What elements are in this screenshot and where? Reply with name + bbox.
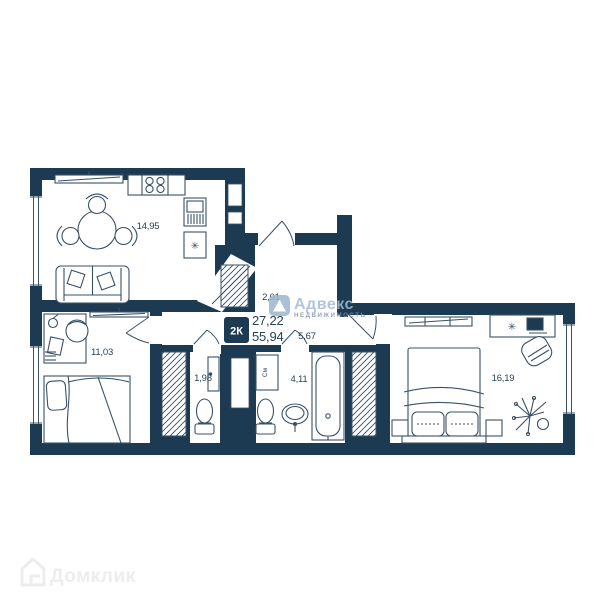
bedroom1-chair — [66, 320, 88, 342]
kitchen-window — [30, 196, 42, 286]
bed2-nightstand — [392, 420, 408, 436]
portal-watermark-title: Домклик — [50, 566, 136, 587]
washing-machine: См — [256, 355, 278, 390]
bedroom2-plant — [513, 397, 549, 436]
wardrobe-corridor-right — [352, 352, 376, 436]
bedroom2-door-opening — [374, 314, 392, 344]
bedroom2-monitor — [527, 318, 543, 330]
bedroom2-bed — [392, 348, 502, 443]
shaft-niche-2 — [228, 212, 242, 224]
wc-door-opening — [193, 341, 221, 354]
washing-machine-label: См — [262, 367, 269, 377]
total-area-value: 55,94 — [252, 329, 284, 344]
bedroom2-chair — [519, 334, 555, 369]
room-label-wc: 1,98 — [194, 373, 212, 384]
wall-rightwing-top — [337, 303, 575, 315]
floor-plan-canvas: ✳ — [0, 0, 600, 600]
bed2-base — [402, 436, 486, 443]
duct-slit — [231, 358, 249, 408]
shaft-niche-1 — [228, 184, 242, 206]
wardrobe-corridor-left — [162, 352, 186, 436]
wall-closet-left-base — [162, 436, 186, 443]
bathroom-toilet — [256, 399, 275, 434]
entrance-opening — [258, 231, 295, 247]
agency-watermark: Адвекс НЕДВИЖИМОСТЬ — [269, 295, 366, 319]
room-label-hallway: 5,67 — [298, 331, 316, 342]
bedroom1-window — [30, 346, 42, 424]
floor-plan-svg: ✳ — [0, 0, 600, 600]
bedroom1-bed — [44, 376, 130, 443]
bed1-pillow — [46, 380, 67, 410]
fridge-snowflake-icon: ✳ — [191, 241, 199, 252]
bedroom1-door — [126, 317, 149, 343]
wall-bath-right — [345, 352, 352, 443]
room-label-kitchen-living: 14,95 — [137, 221, 160, 232]
room-label-bathroom: 4,11 — [291, 374, 308, 385]
wall-bottom — [30, 443, 575, 455]
room-label-bedroom-2: 16,19 — [492, 373, 515, 384]
bath-door-opening — [281, 341, 309, 354]
bed2-pillow — [412, 412, 444, 436]
portal-watermark: Домклик — [22, 559, 136, 587]
agency-watermark-subtitle: НЕДВИЖИМОСТЬ — [294, 312, 366, 319]
bedroom2-tv — [405, 317, 472, 326]
bed2-nightstand — [486, 420, 502, 436]
stove — [142, 175, 168, 195]
agency-watermark-title: Адвекс — [294, 296, 354, 313]
bed2-pillow — [446, 412, 478, 436]
bathroom-sink — [282, 404, 308, 432]
wc-toilet — [195, 399, 214, 434]
bathtub — [312, 352, 344, 440]
bedroom1-desk-lamp — [49, 319, 58, 328]
sofa — [56, 266, 129, 303]
bedroom2-window — [563, 324, 575, 414]
desk-plant-icon: ✳ — [508, 322, 516, 333]
dining-table — [57, 194, 137, 249]
dining-chair — [89, 197, 106, 214]
fridge: ✳ — [184, 232, 206, 258]
apartment-type-label: 2К — [230, 326, 243, 338]
apartment-summary: 2К 27,22 55,94 — [224, 313, 284, 344]
bedroom1-door-opening — [146, 316, 164, 344]
wall-closet-right-base — [352, 436, 376, 443]
bedroom2-desk: ✳ — [490, 315, 555, 337]
portal-house-icon — [22, 559, 44, 585]
dining-chair — [62, 228, 79, 245]
kitchen-sink-unit — [184, 198, 206, 226]
wall-wc-left — [186, 352, 190, 443]
room-label-bedroom-1: 11,03 — [91, 347, 113, 358]
wardrobe-entry-hall — [221, 265, 248, 307]
dining-chair — [115, 228, 132, 245]
